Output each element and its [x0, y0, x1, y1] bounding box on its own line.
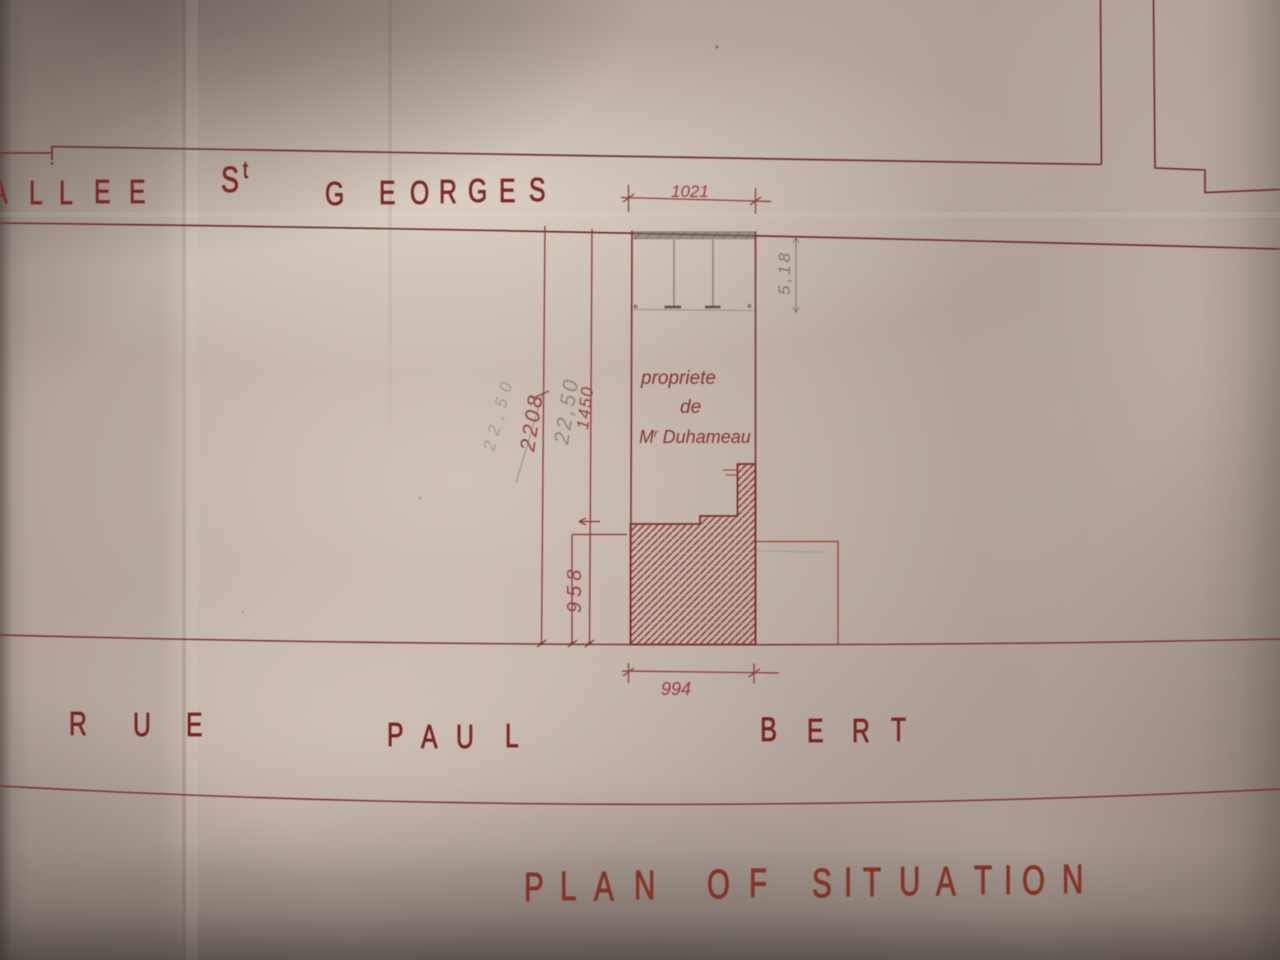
svg-text:G: G	[468, 174, 487, 210]
svg-text:E: E	[129, 175, 146, 211]
svg-text:G: G	[325, 177, 344, 213]
svg-text:t: t	[243, 158, 248, 184]
svg-text:U: U	[456, 720, 474, 756]
svg-text:T: T	[891, 713, 906, 749]
svg-text:I: I	[844, 859, 852, 905]
svg-text:E: E	[807, 714, 824, 750]
svg-text:22,50: 22,50	[479, 373, 518, 454]
svg-text:B: B	[760, 712, 777, 749]
svg-text:S: S	[221, 159, 239, 200]
svg-text:994: 994	[661, 679, 691, 699]
svg-text:de: de	[680, 397, 701, 418]
svg-text:5,18: 5,18	[775, 250, 794, 295]
svg-text:958: 958	[564, 565, 586, 613]
svg-text:A: A	[421, 720, 438, 756]
svg-text:L: L	[29, 176, 43, 212]
svg-text:1450: 1450	[573, 385, 597, 431]
svg-text:Mr Duhameau: Mr Duhameau	[639, 427, 751, 447]
svg-text:E: E	[379, 176, 396, 212]
svg-text:L: L	[560, 863, 576, 909]
svg-text:A: A	[0, 175, 8, 211]
svg-text:R: R	[69, 707, 87, 743]
svg-text:L: L	[505, 719, 519, 755]
svg-text:I: I	[1004, 857, 1012, 903]
svg-text:F: F	[749, 860, 767, 906]
svg-text:O: O	[707, 861, 730, 907]
svg-text:U: U	[133, 708, 151, 744]
svg-text:S: S	[812, 860, 832, 906]
svg-text:1021: 1021	[671, 182, 709, 201]
svg-text:O: O	[410, 176, 429, 212]
svg-text:R: R	[852, 714, 870, 750]
svg-text:propriete: propriete	[640, 368, 716, 389]
svg-text:O: O	[1022, 857, 1045, 903]
svg-text:E: E	[186, 708, 203, 744]
svg-text:T: T	[974, 857, 992, 903]
svg-text:U: U	[899, 858, 920, 904]
svg-text:S: S	[529, 173, 546, 209]
svg-text:L: L	[59, 176, 73, 212]
svg-text:A: A	[594, 863, 614, 909]
svg-text:P: P	[524, 864, 544, 910]
svg-text:T: T	[863, 859, 881, 905]
svg-text:R: R	[439, 175, 457, 211]
svg-text:E: E	[94, 175, 111, 211]
svg-text:A: A	[936, 858, 956, 904]
svg-text:N: N	[634, 862, 655, 908]
svg-text:N: N	[1062, 856, 1083, 902]
svg-text:E: E	[499, 174, 516, 210]
svg-text:P: P	[387, 718, 404, 754]
